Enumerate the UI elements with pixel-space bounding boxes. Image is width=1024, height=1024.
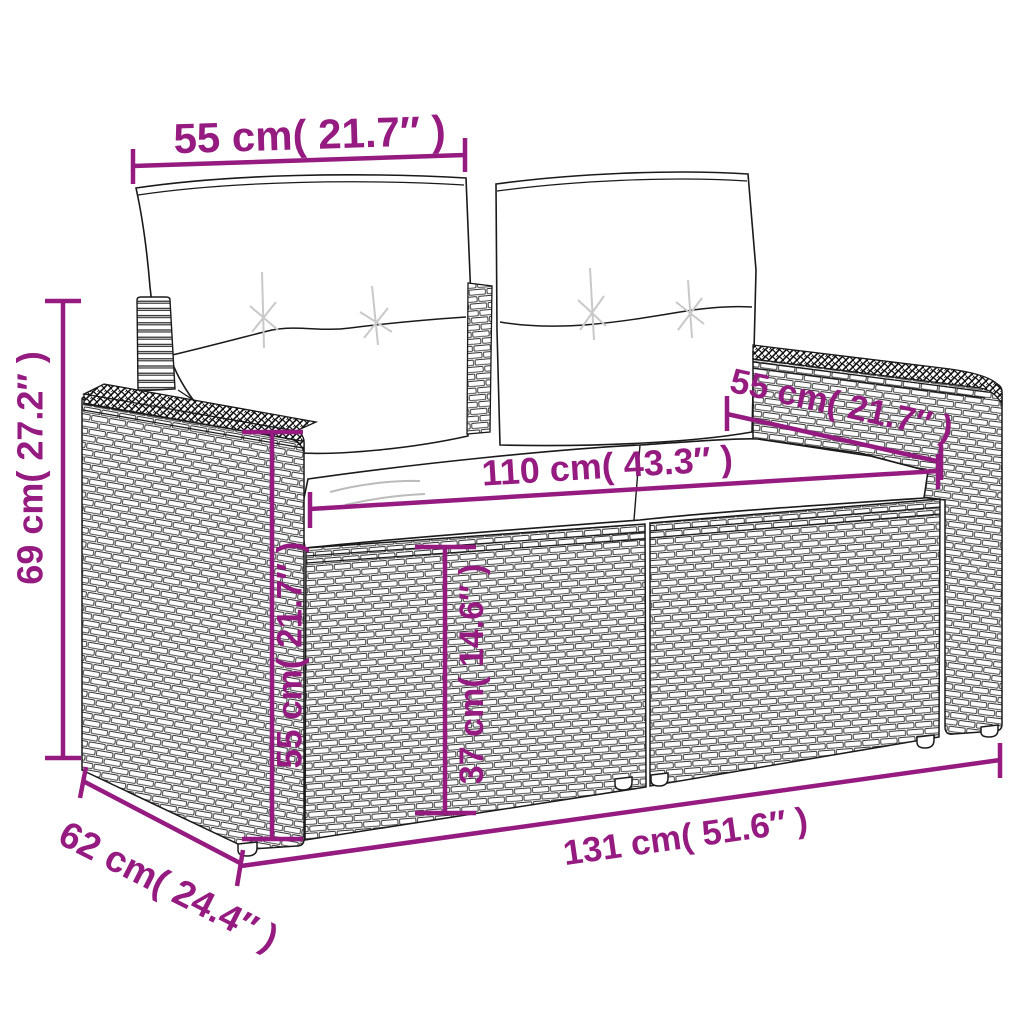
svg-text:69 cm( 27.2″ ): 69 cm( 27.2″ ) <box>10 351 51 584</box>
svg-text:37 cm( 14.6″ ): 37 cm( 14.6″ ) <box>453 564 491 784</box>
svg-text:55 cm( 21.7″ ): 55 cm( 21.7″ ) <box>270 542 309 769</box>
svg-text:55 cm( 21.7″ ): 55 cm( 21.7″ ) <box>173 107 447 163</box>
